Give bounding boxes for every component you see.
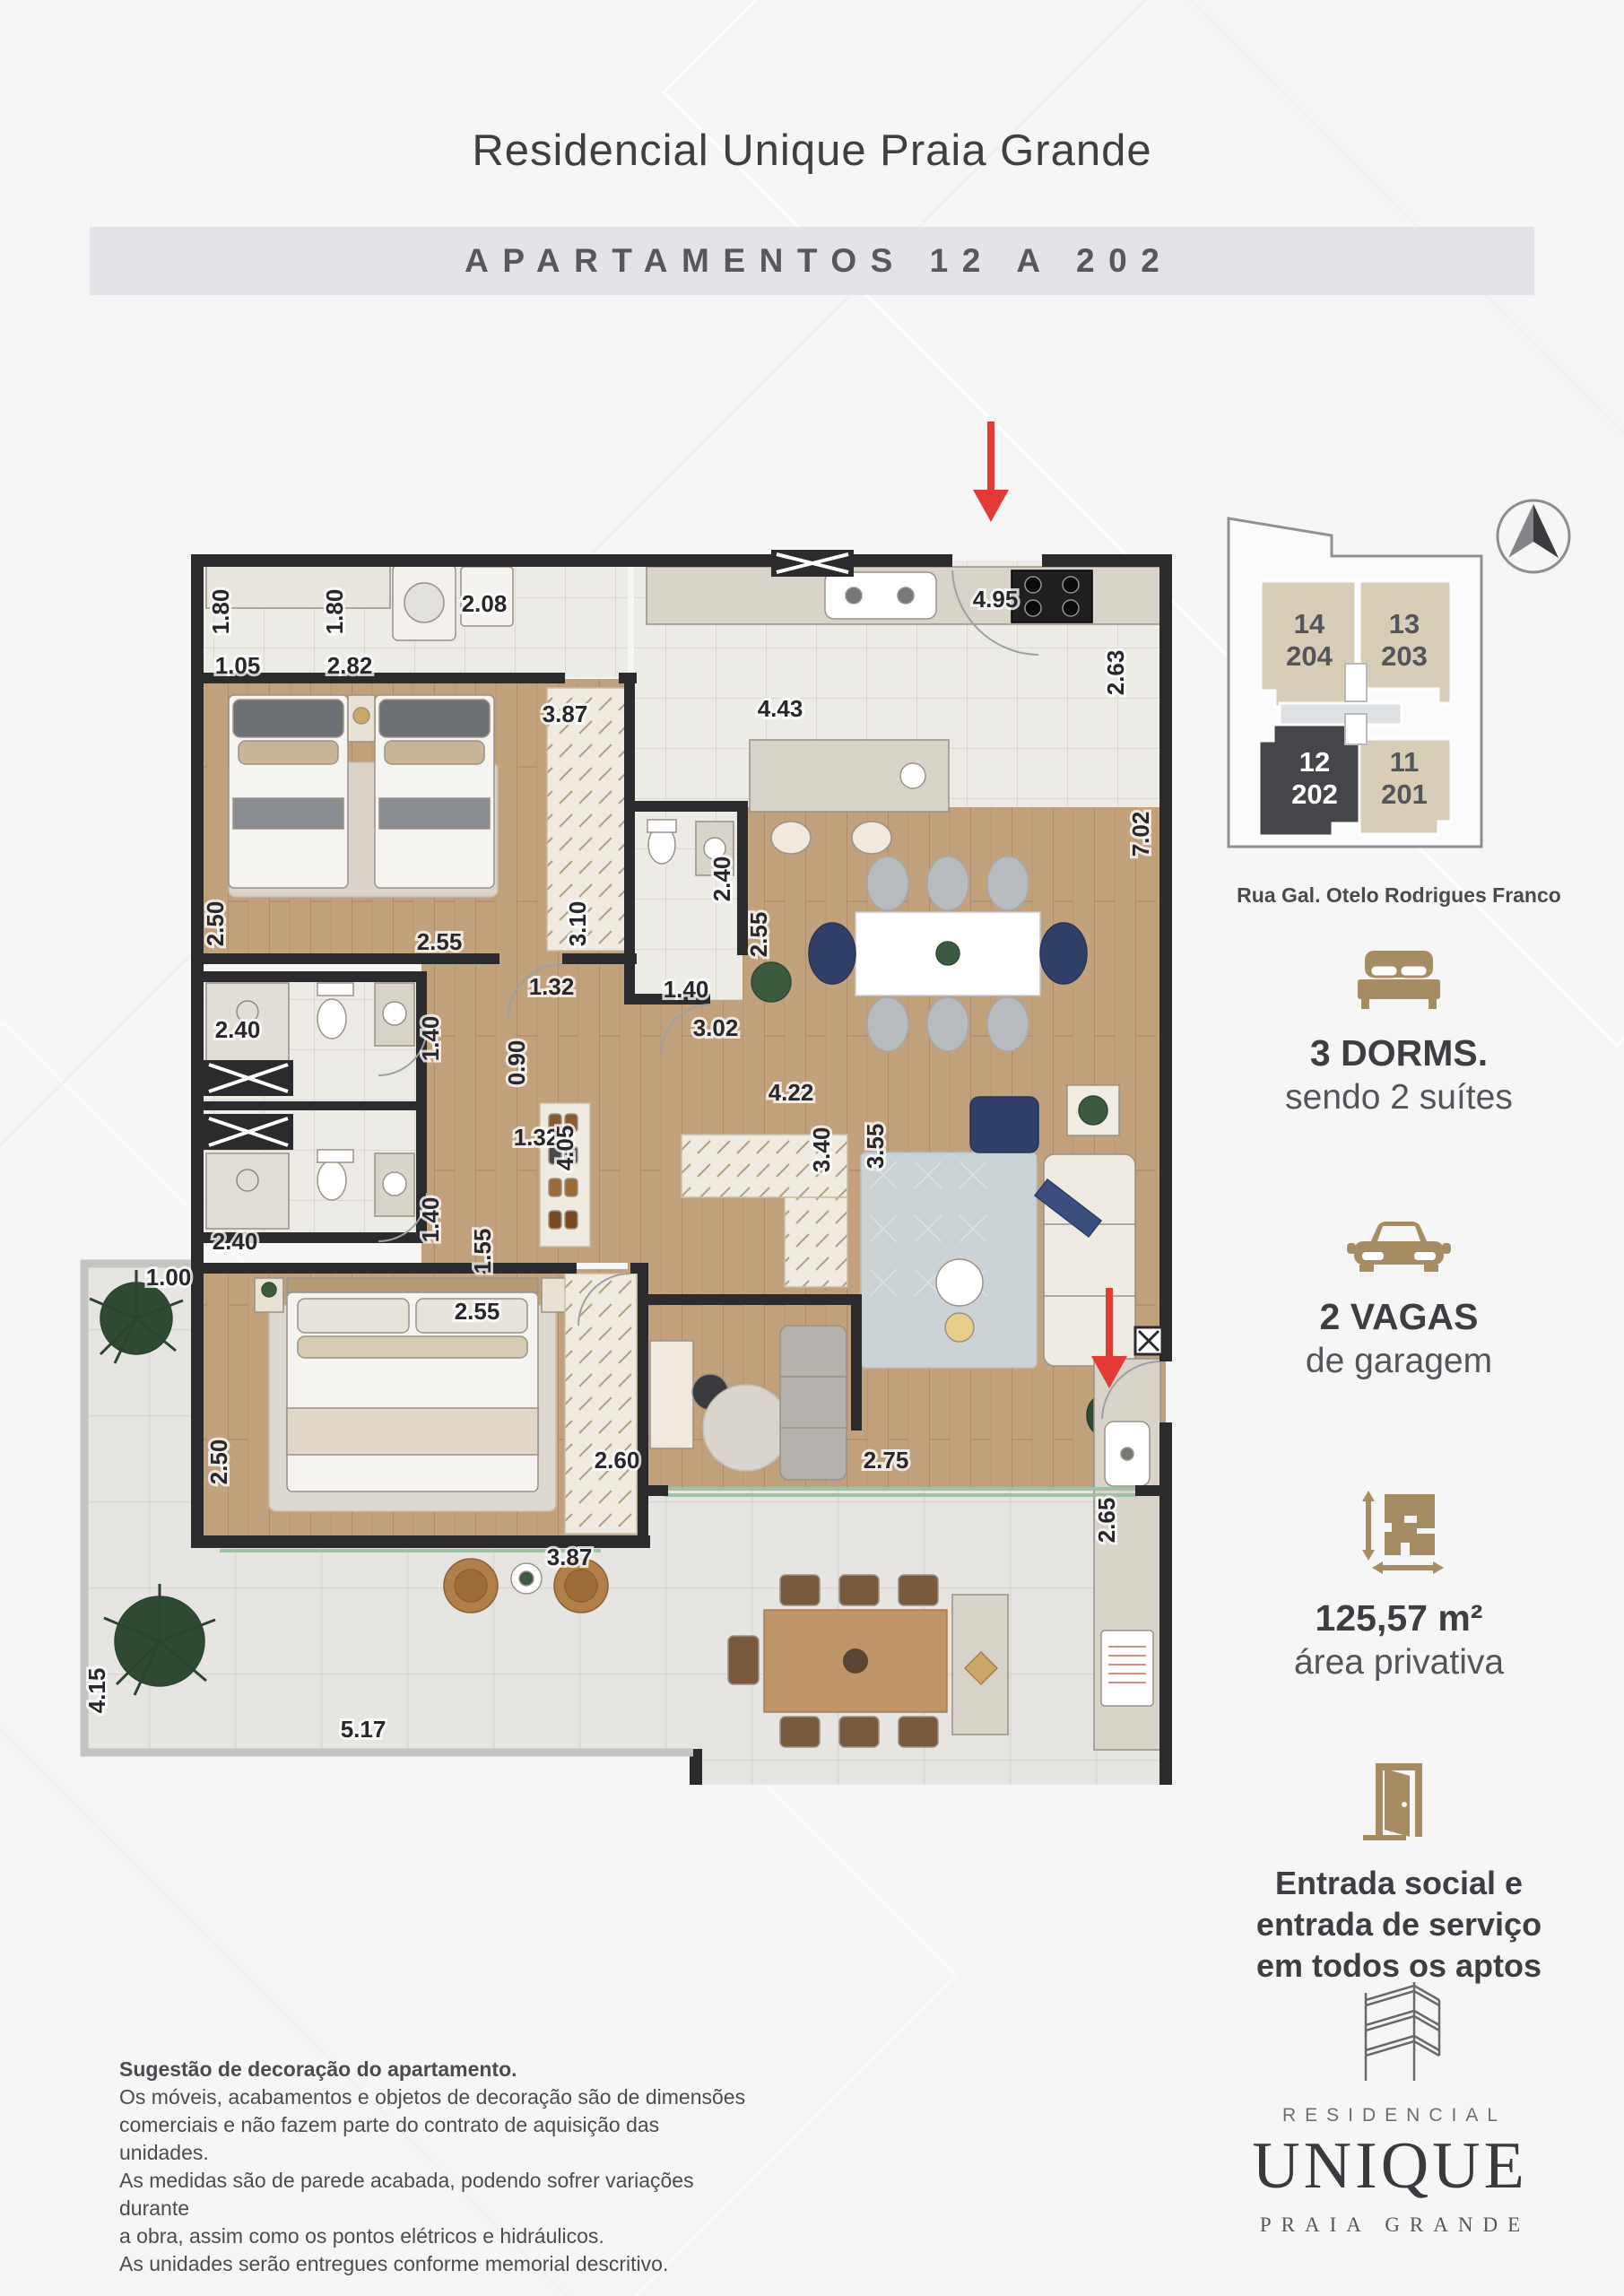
dimension-label: 2.50 <box>205 1439 232 1485</box>
logo-praia-grande: PRAIA GRANDE <box>1202 2213 1578 2237</box>
disclaimer-line: As unidades serão entregues conforme mem… <box>119 2250 747 2278</box>
dimension-label: 4.15 <box>83 1668 110 1714</box>
unit-12-number: 12 <box>1299 746 1330 778</box>
dimension-label: 1.55 <box>469 1229 496 1274</box>
feature-title: 2 VAGAS <box>1193 1294 1605 1340</box>
dimension-label: 1.32 <box>529 973 575 1000</box>
dimension-label: 1.40 <box>664 976 709 1003</box>
dimension-label: 4.43 <box>758 695 803 722</box>
building-icon <box>1332 2076 1448 2092</box>
apartment-banner: APARTAMENTOS 12 A 202 <box>90 227 1534 295</box>
feature-title: 3 DORMS. <box>1193 1031 1605 1076</box>
dimension-label: 1.40 <box>417 1197 444 1243</box>
dimension-label: 2.75 <box>864 1447 909 1474</box>
area-icon <box>1354 1489 1444 1583</box>
dimension-label: 1.00 <box>146 1264 192 1291</box>
disclaimer-line: Os móveis, acabamentos e objetos de deco… <box>119 2083 747 2111</box>
unit-11-number: 11 <box>1390 746 1420 778</box>
dimension-label: 2.08 <box>462 590 508 617</box>
dimension-label: 2.82 <box>327 652 373 679</box>
unit-11-apt: 201 <box>1381 778 1428 810</box>
brand-logo: RESIDENCIAL UNIQUE PRAIA GRANDE <box>1202 1973 1578 2237</box>
feature-area: 125,57 m² área privativa <box>1193 1489 1605 1685</box>
feature-dorms: 3 DORMS. sendo 2 suítes <box>1193 951 1605 1120</box>
dimension-label: 3.10 <box>564 901 591 947</box>
car-icon <box>1347 1220 1451 1278</box>
dimension-label: 3.87 <box>543 700 588 727</box>
dimension-label: 2.55 <box>455 1298 500 1325</box>
dimension-label: 2.65 <box>1093 1498 1120 1544</box>
logo-residencial: RESIDENCIAL <box>1202 2105 1578 2126</box>
dimension-label: 3.55 <box>862 1124 889 1170</box>
dimension-label: 0.90 <box>503 1040 530 1086</box>
street-label: Rua Gal. Otelo Rodrigues Franco <box>1193 883 1605 908</box>
dimension-label: 1.80 <box>207 589 234 635</box>
feature-line2: entrada de serviço <box>1193 1904 1605 1945</box>
dimension-label: 3.87 <box>547 1544 593 1570</box>
dimension-label: 5.17 <box>341 1716 386 1743</box>
compass-icon <box>1498 500 1569 572</box>
disclaimer-title: Sugestão de decoração do apartamento. <box>119 2056 747 2083</box>
dimension-label: 2.50 <box>202 901 229 947</box>
feature-title: Entrada social e <box>1193 1863 1605 1904</box>
unit-14-number: 14 <box>1294 608 1325 639</box>
dimension-label: 2.55 <box>745 912 772 958</box>
unit-12-apt: 202 <box>1291 778 1338 810</box>
feature-entrada: Entrada social e entrada de serviço em t… <box>1193 1758 1605 1987</box>
logo-unique: UNIQUE <box>1202 2128 1578 2205</box>
dimension-label: 2.60 <box>595 1447 640 1474</box>
key-plan-svg: 14 204 13 203 12 202 11 201 <box>1202 484 1596 888</box>
dimension-label: 4.05 <box>551 1126 578 1171</box>
dimension-label: 2.55 <box>417 928 463 955</box>
feature-subtitle: sendo 2 suítes <box>1193 1076 1605 1120</box>
bed-icon <box>1352 951 1446 1014</box>
dimension-label: 7.02 <box>1127 812 1154 857</box>
dimension-label: 4.22 <box>769 1079 814 1106</box>
disclaimer-line: As medidas são de parede acabada, podend… <box>119 2167 747 2222</box>
banner-label: APARTAMENTOS 12 A 202 <box>451 242 1174 280</box>
dimension-label: 2.40 <box>215 1016 261 1043</box>
key-plan: 14 204 13 203 12 202 11 201 <box>1202 484 1596 888</box>
feature-subtitle: de garagem <box>1193 1340 1605 1384</box>
core-shape <box>1280 703 1402 725</box>
dimension-label: 4.95 <box>973 586 1019 613</box>
disclaimer: Sugestão de decoração do apartamento. Os… <box>119 2056 747 2278</box>
feature-vagas: 2 VAGAS de garagem <box>1193 1220 1605 1384</box>
dimension-label: 1.80 <box>321 589 348 635</box>
dimension-label: 1.40 <box>417 1016 444 1062</box>
disclaimer-line: a obra, assim como os pontos elétricos e… <box>119 2222 747 2250</box>
unit-14-apt: 204 <box>1286 640 1333 672</box>
unit-13-apt: 203 <box>1381 640 1428 672</box>
page: Residencial Unique Praia Grande APARTAME… <box>0 0 1624 2296</box>
feature-subtitle: área privativa <box>1193 1641 1605 1685</box>
floor-plan: 1.801.802.081.052.823.874.952.634.437.02… <box>63 296 1175 1785</box>
disclaimer-line: comerciais e não fazem parte do contrato… <box>119 2111 747 2167</box>
dimension-label: 3.02 <box>693 1014 739 1041</box>
feature-title: 125,57 m² <box>1193 1596 1605 1641</box>
dimension-label: 1.05 <box>215 652 261 679</box>
door-icon <box>1358 1758 1440 1848</box>
dimension-label: 2.40 <box>708 857 735 902</box>
dimension-label: 2.40 <box>213 1228 258 1255</box>
floor-plan-svg: 1.801.802.081.052.823.874.952.634.437.02… <box>63 296 1175 1785</box>
unit-13-number: 13 <box>1389 608 1420 639</box>
dimension-label: 2.63 <box>1102 650 1129 696</box>
page-title: Residencial Unique Praia Grande <box>0 126 1624 176</box>
dimension-label: 3.40 <box>808 1127 835 1173</box>
